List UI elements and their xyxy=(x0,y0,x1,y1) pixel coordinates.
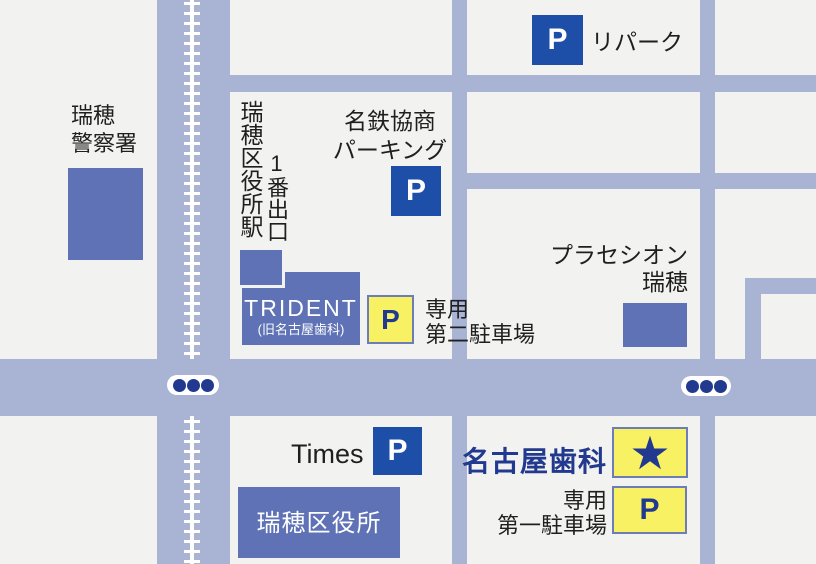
lot2-label: 専用 第二駐車場 xyxy=(425,297,535,347)
police-station-building xyxy=(68,168,143,260)
p-letter: P xyxy=(387,436,407,466)
police-label-line2: 警察署 xyxy=(71,130,137,158)
railway-line-lower xyxy=(190,416,194,564)
traffic-signal-right xyxy=(681,376,731,396)
signal-dot xyxy=(201,379,214,392)
clinic-name-label: 名古屋歯科 xyxy=(460,440,607,480)
road-top-horizontal xyxy=(228,75,816,92)
placecion-label-line1: プラセシオン xyxy=(545,242,688,269)
lot1-label-line1: 専用 xyxy=(470,488,607,513)
access-map: P P P P ★ P 瑞穂 警察署 瑞穂区役所駅 1番出口 名鉄協商 パーキン… xyxy=(0,0,816,564)
lot1-parking-icon: P xyxy=(612,486,687,534)
p-letter: P xyxy=(406,176,426,206)
lot2-label-line2: 第二駐車場 xyxy=(425,322,535,347)
ward-office-label: 瑞穂区役所 xyxy=(238,512,400,536)
station-name-label: 瑞穂区役所駅 xyxy=(238,100,261,238)
star-icon: ★ xyxy=(629,430,670,476)
station-exit-label: 1番出口 xyxy=(265,151,287,242)
lot1-label-line2: 第一駐車場 xyxy=(470,513,607,538)
road-stub-vertical xyxy=(745,278,761,359)
signal-dot xyxy=(686,380,699,393)
signal-dot xyxy=(173,379,186,392)
repark-parking-icon: P xyxy=(532,15,583,65)
p-letter: P xyxy=(381,306,400,334)
railway-line-upper xyxy=(190,0,194,359)
meitetsu-label-line2: パーキング xyxy=(320,136,460,165)
meitetsu-parking-icon: P xyxy=(391,166,441,216)
p-letter: P xyxy=(547,25,567,55)
placecion-building xyxy=(623,303,687,347)
station-exit-building xyxy=(240,250,282,285)
lot1-label: 専用 第一駐車場 xyxy=(470,488,607,538)
times-parking-icon: P xyxy=(373,427,422,475)
signal-dot xyxy=(187,379,200,392)
trident-subname-label: (旧名古屋歯科) xyxy=(242,323,360,336)
meitetsu-parking-label: 名鉄協商 パーキング xyxy=(320,107,460,165)
trident-building-upper xyxy=(285,272,360,288)
road-vertical-right xyxy=(700,0,715,564)
meitetsu-label-line1: 名鉄協商 xyxy=(320,107,460,136)
traffic-signal-left xyxy=(167,375,219,395)
road-second-horizontal xyxy=(452,173,816,189)
police-station-label: 瑞穂 警察署 xyxy=(71,102,137,158)
clinic-star-marker: ★ xyxy=(612,427,688,478)
signal-dot xyxy=(700,380,713,393)
repark-label: リパーク xyxy=(591,29,683,56)
trident-name-label: TRIDENT xyxy=(242,297,360,320)
placecion-label-line2: 瑞穂 xyxy=(545,269,688,296)
lot2-parking-icon: P xyxy=(367,295,414,344)
times-label: Times xyxy=(291,439,364,471)
p-letter: P xyxy=(639,495,659,525)
police-label-line1: 瑞穂 xyxy=(71,102,137,130)
placecion-label: プラセシオン 瑞穂 xyxy=(545,242,688,296)
lot2-label-line1: 専用 xyxy=(425,297,535,322)
signal-dot xyxy=(714,380,727,393)
